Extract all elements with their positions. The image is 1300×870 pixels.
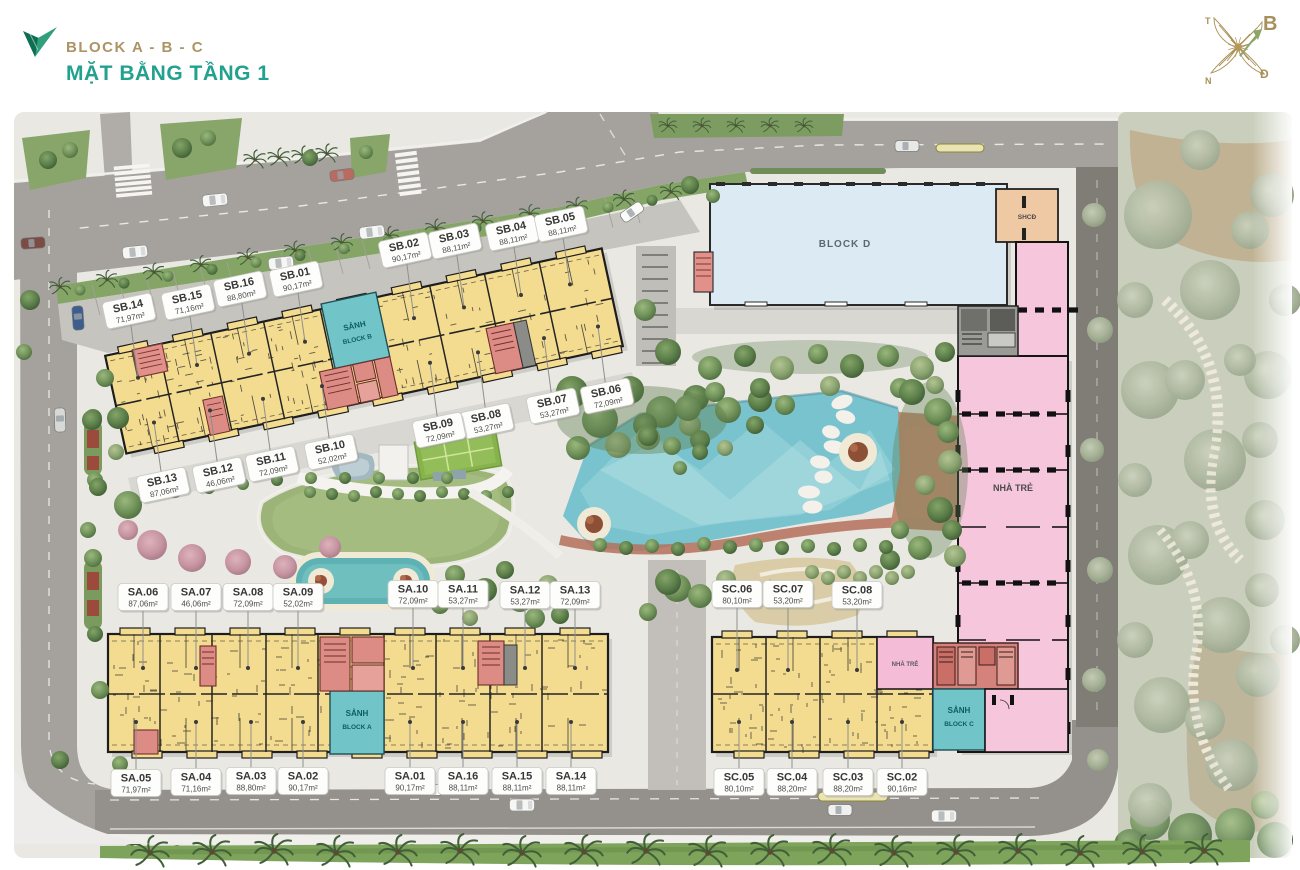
svg-text:BLOCK C: BLOCK C	[944, 721, 974, 728]
svg-text:BLOCK A: BLOCK A	[342, 724, 372, 731]
svg-text:T: T	[1205, 16, 1211, 26]
svg-text:MẶT BẰNG TẦNG 1: MẶT BẰNG TẦNG 1	[66, 61, 270, 85]
svg-text:90,17m²: 90,17m²	[395, 784, 425, 793]
svg-text:53,27m²: 53,27m²	[510, 598, 540, 607]
svg-text:SA.16: SA.16	[448, 771, 479, 783]
svg-text:SA.13: SA.13	[560, 585, 591, 597]
svg-text:80,10m²: 80,10m²	[724, 785, 754, 794]
svg-text:90,16m²: 90,16m²	[887, 785, 917, 794]
svg-text:NHÀ TRẺ: NHÀ TRẺ	[993, 482, 1033, 493]
svg-text:SA.04: SA.04	[181, 772, 212, 784]
svg-text:71,97m²: 71,97m²	[121, 786, 151, 795]
svg-text:72,09m²: 72,09m²	[560, 598, 590, 607]
svg-text:N: N	[1205, 76, 1212, 86]
svg-text:SA.05: SA.05	[121, 773, 152, 785]
svg-text:B: B	[1263, 13, 1277, 35]
svg-text:SC.04: SC.04	[777, 772, 808, 784]
svg-text:SA.06: SA.06	[128, 587, 159, 599]
svg-text:SẢNH: SẢNH	[948, 706, 971, 715]
svg-text:SA.12: SA.12	[510, 585, 541, 597]
svg-text:87,06m²: 87,06m²	[128, 600, 158, 609]
svg-text:SC.05: SC.05	[724, 772, 755, 784]
svg-text:BLOCK A - B - C: BLOCK A - B - C	[66, 39, 204, 56]
svg-text:88,11m²: 88,11m²	[557, 784, 586, 793]
svg-text:88,80m²: 88,80m²	[236, 784, 266, 793]
svg-text:72,09m²: 72,09m²	[398, 597, 428, 606]
svg-text:53,20m²: 53,20m²	[842, 598, 872, 607]
svg-text:88,20m²: 88,20m²	[777, 785, 807, 794]
svg-text:SC.03: SC.03	[833, 772, 864, 784]
svg-text:SA.02: SA.02	[288, 771, 319, 783]
svg-text:71,16m²: 71,16m²	[181, 785, 211, 794]
svg-text:SC.08: SC.08	[842, 585, 873, 597]
svg-text:SA.08: SA.08	[233, 587, 264, 599]
svg-text:BLOCK D: BLOCK D	[819, 239, 872, 250]
svg-text:53,27m²: 53,27m²	[448, 597, 478, 606]
svg-text:80,10m²: 80,10m²	[722, 597, 752, 606]
svg-text:SA.09: SA.09	[283, 587, 314, 599]
svg-text:NHÀ TRẺ: NHÀ TRẺ	[892, 661, 919, 668]
svg-text:88,11m²: 88,11m²	[503, 784, 532, 793]
svg-text:SC.02: SC.02	[887, 772, 918, 784]
svg-text:SA.10: SA.10	[398, 584, 429, 596]
svg-text:SA.15: SA.15	[502, 771, 533, 783]
svg-text:SA.14: SA.14	[556, 771, 587, 783]
svg-text:90,17m²: 90,17m²	[288, 784, 318, 793]
svg-text:88,11m²: 88,11m²	[449, 784, 478, 793]
svg-text:SA.11: SA.11	[448, 584, 478, 596]
svg-text:SC.06: SC.06	[722, 584, 753, 596]
svg-text:72,09m²: 72,09m²	[233, 600, 263, 609]
svg-text:SC.07: SC.07	[773, 584, 804, 596]
svg-text:SA.01: SA.01	[395, 771, 426, 783]
svg-text:SA.07: SA.07	[181, 587, 212, 599]
svg-text:88,20m²: 88,20m²	[833, 785, 863, 794]
svg-text:52,02m²: 52,02m²	[283, 600, 313, 609]
svg-text:SHCĐ: SHCĐ	[1018, 214, 1037, 221]
svg-text:SA.03: SA.03	[236, 771, 267, 783]
svg-text:46,06m²: 46,06m²	[181, 600, 211, 609]
svg-text:Đ: Đ	[1260, 67, 1269, 81]
svg-text:SẢNH: SẢNH	[346, 709, 369, 718]
svg-text:53,20m²: 53,20m²	[773, 597, 803, 606]
